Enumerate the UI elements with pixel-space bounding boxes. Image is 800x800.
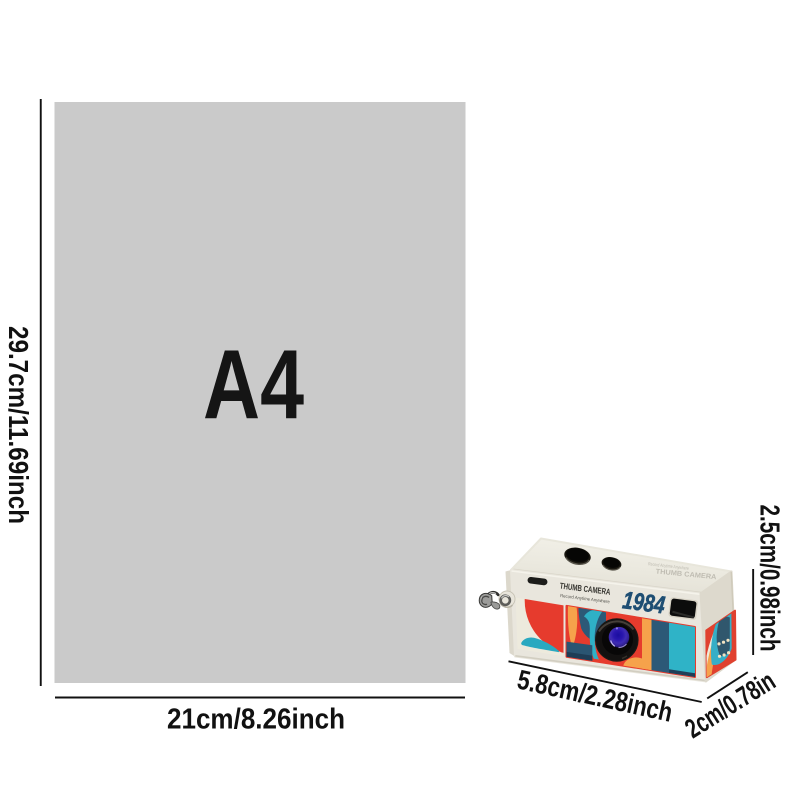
svg-text:2.5cm/0.98inch: 2.5cm/0.98inch	[755, 505, 786, 652]
svg-text:21cm/8.26inch: 21cm/8.26inch	[167, 704, 345, 736]
svg-text:A4: A4	[203, 331, 304, 441]
svg-text:29.7cm/11.69inch: 29.7cm/11.69inch	[3, 326, 34, 524]
svg-text:1984: 1984	[621, 587, 667, 619]
